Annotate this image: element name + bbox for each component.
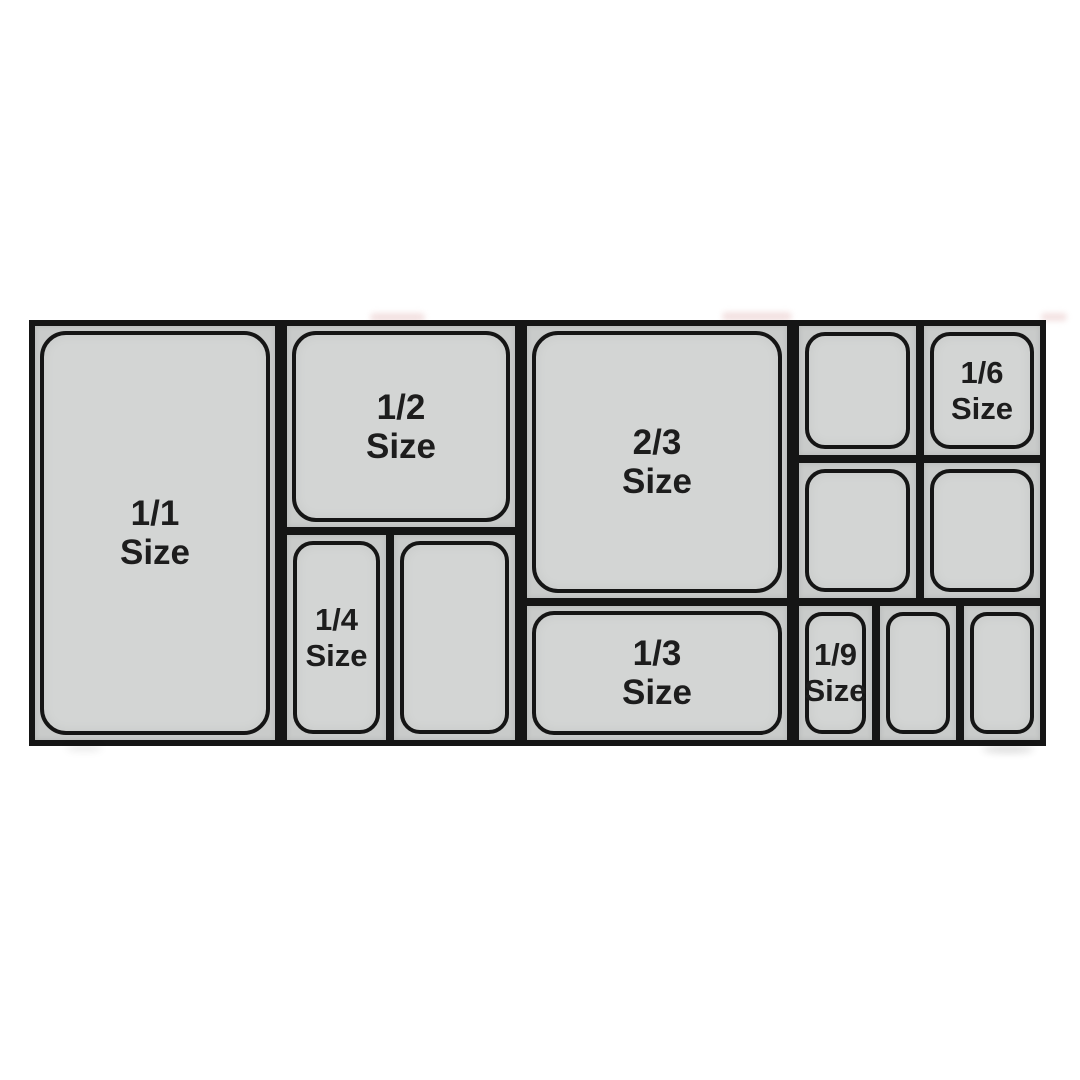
pan-1-9-label: 1/9 Size [804, 637, 866, 709]
gastronorm-pan-size-chart: 1/1 Size 1/2 Size 1/4 Size [0, 0, 1080, 1080]
pan-cell-1-4: 1/4 Size [287, 535, 386, 740]
pan-1-6-unlabeled-outline [805, 469, 910, 592]
pan-cell-1-6: 1/6 Size [924, 326, 1040, 455]
pan-grid-frame: 1/1 Size 1/2 Size 1/4 Size [29, 320, 1046, 746]
pan-cell-1-6-unlabeled-1 [799, 326, 916, 455]
pan-cell-1-9: 1/9 Size [799, 606, 872, 740]
pan-2-3-outline: 2/3 Size [532, 331, 782, 593]
pan-1-9-unlabeled-outline [886, 612, 950, 734]
label-fraction: 1/9 [814, 637, 857, 673]
label-word: Size [951, 391, 1013, 427]
pan-1-1-outline: 1/1 Size [40, 331, 270, 735]
photo-artifact-shadow-right [982, 745, 1034, 753]
photo-artifact-shadow-left [66, 745, 102, 751]
pan-cell-1-1: 1/1 Size [35, 326, 275, 740]
label-word: Size [622, 462, 692, 501]
label-word: Size [804, 673, 866, 709]
pan-1-2-outline: 1/2 Size [292, 331, 510, 522]
pan-1-2-label: 1/2 Size [366, 388, 436, 466]
pan-1-6-outline: 1/6 Size [930, 332, 1034, 449]
pan-1-6-unlabeled-outline [930, 469, 1034, 592]
label-word: Size [366, 427, 436, 466]
label-fraction: 2/3 [633, 423, 682, 462]
label-fraction: 1/3 [633, 634, 682, 673]
pan-2-3-label: 2/3 Size [622, 423, 692, 501]
pan-1-9-unlabeled-outline [970, 612, 1034, 734]
pan-cell-1-4-unlabeled [394, 535, 515, 740]
label-fraction: 1/6 [960, 355, 1003, 391]
pan-1-4-unlabeled-outline [400, 541, 509, 734]
pan-1-1-label: 1/1 Size [120, 494, 190, 572]
label-fraction: 1/4 [315, 602, 358, 638]
pan-cell-2-3: 2/3 Size [527, 326, 787, 598]
pan-1-4-label: 1/4 Size [305, 602, 367, 674]
label-word: Size [622, 673, 692, 712]
pan-cell-1-9-unlabeled-1 [880, 606, 956, 740]
pan-1-3-label: 1/3 Size [622, 634, 692, 712]
pan-cell-1-3: 1/3 Size [527, 606, 787, 740]
pan-cell-1-9-unlabeled-2 [964, 606, 1040, 740]
pan-1-4-outline: 1/4 Size [293, 541, 380, 734]
pan-1-9-outline: 1/9 Size [805, 612, 866, 734]
pan-cell-1-2: 1/2 Size [287, 326, 515, 527]
pan-1-6-unlabeled-outline [805, 332, 910, 449]
label-word: Size [120, 533, 190, 572]
pan-1-3-outline: 1/3 Size [532, 611, 782, 735]
label-fraction: 1/1 [131, 494, 180, 533]
pan-cell-1-6-unlabeled-2 [799, 463, 916, 598]
label-fraction: 1/2 [377, 388, 426, 427]
pan-cell-1-6-unlabeled-3 [924, 463, 1040, 598]
label-word: Size [305, 638, 367, 674]
pan-1-6-label: 1/6 Size [951, 355, 1013, 427]
